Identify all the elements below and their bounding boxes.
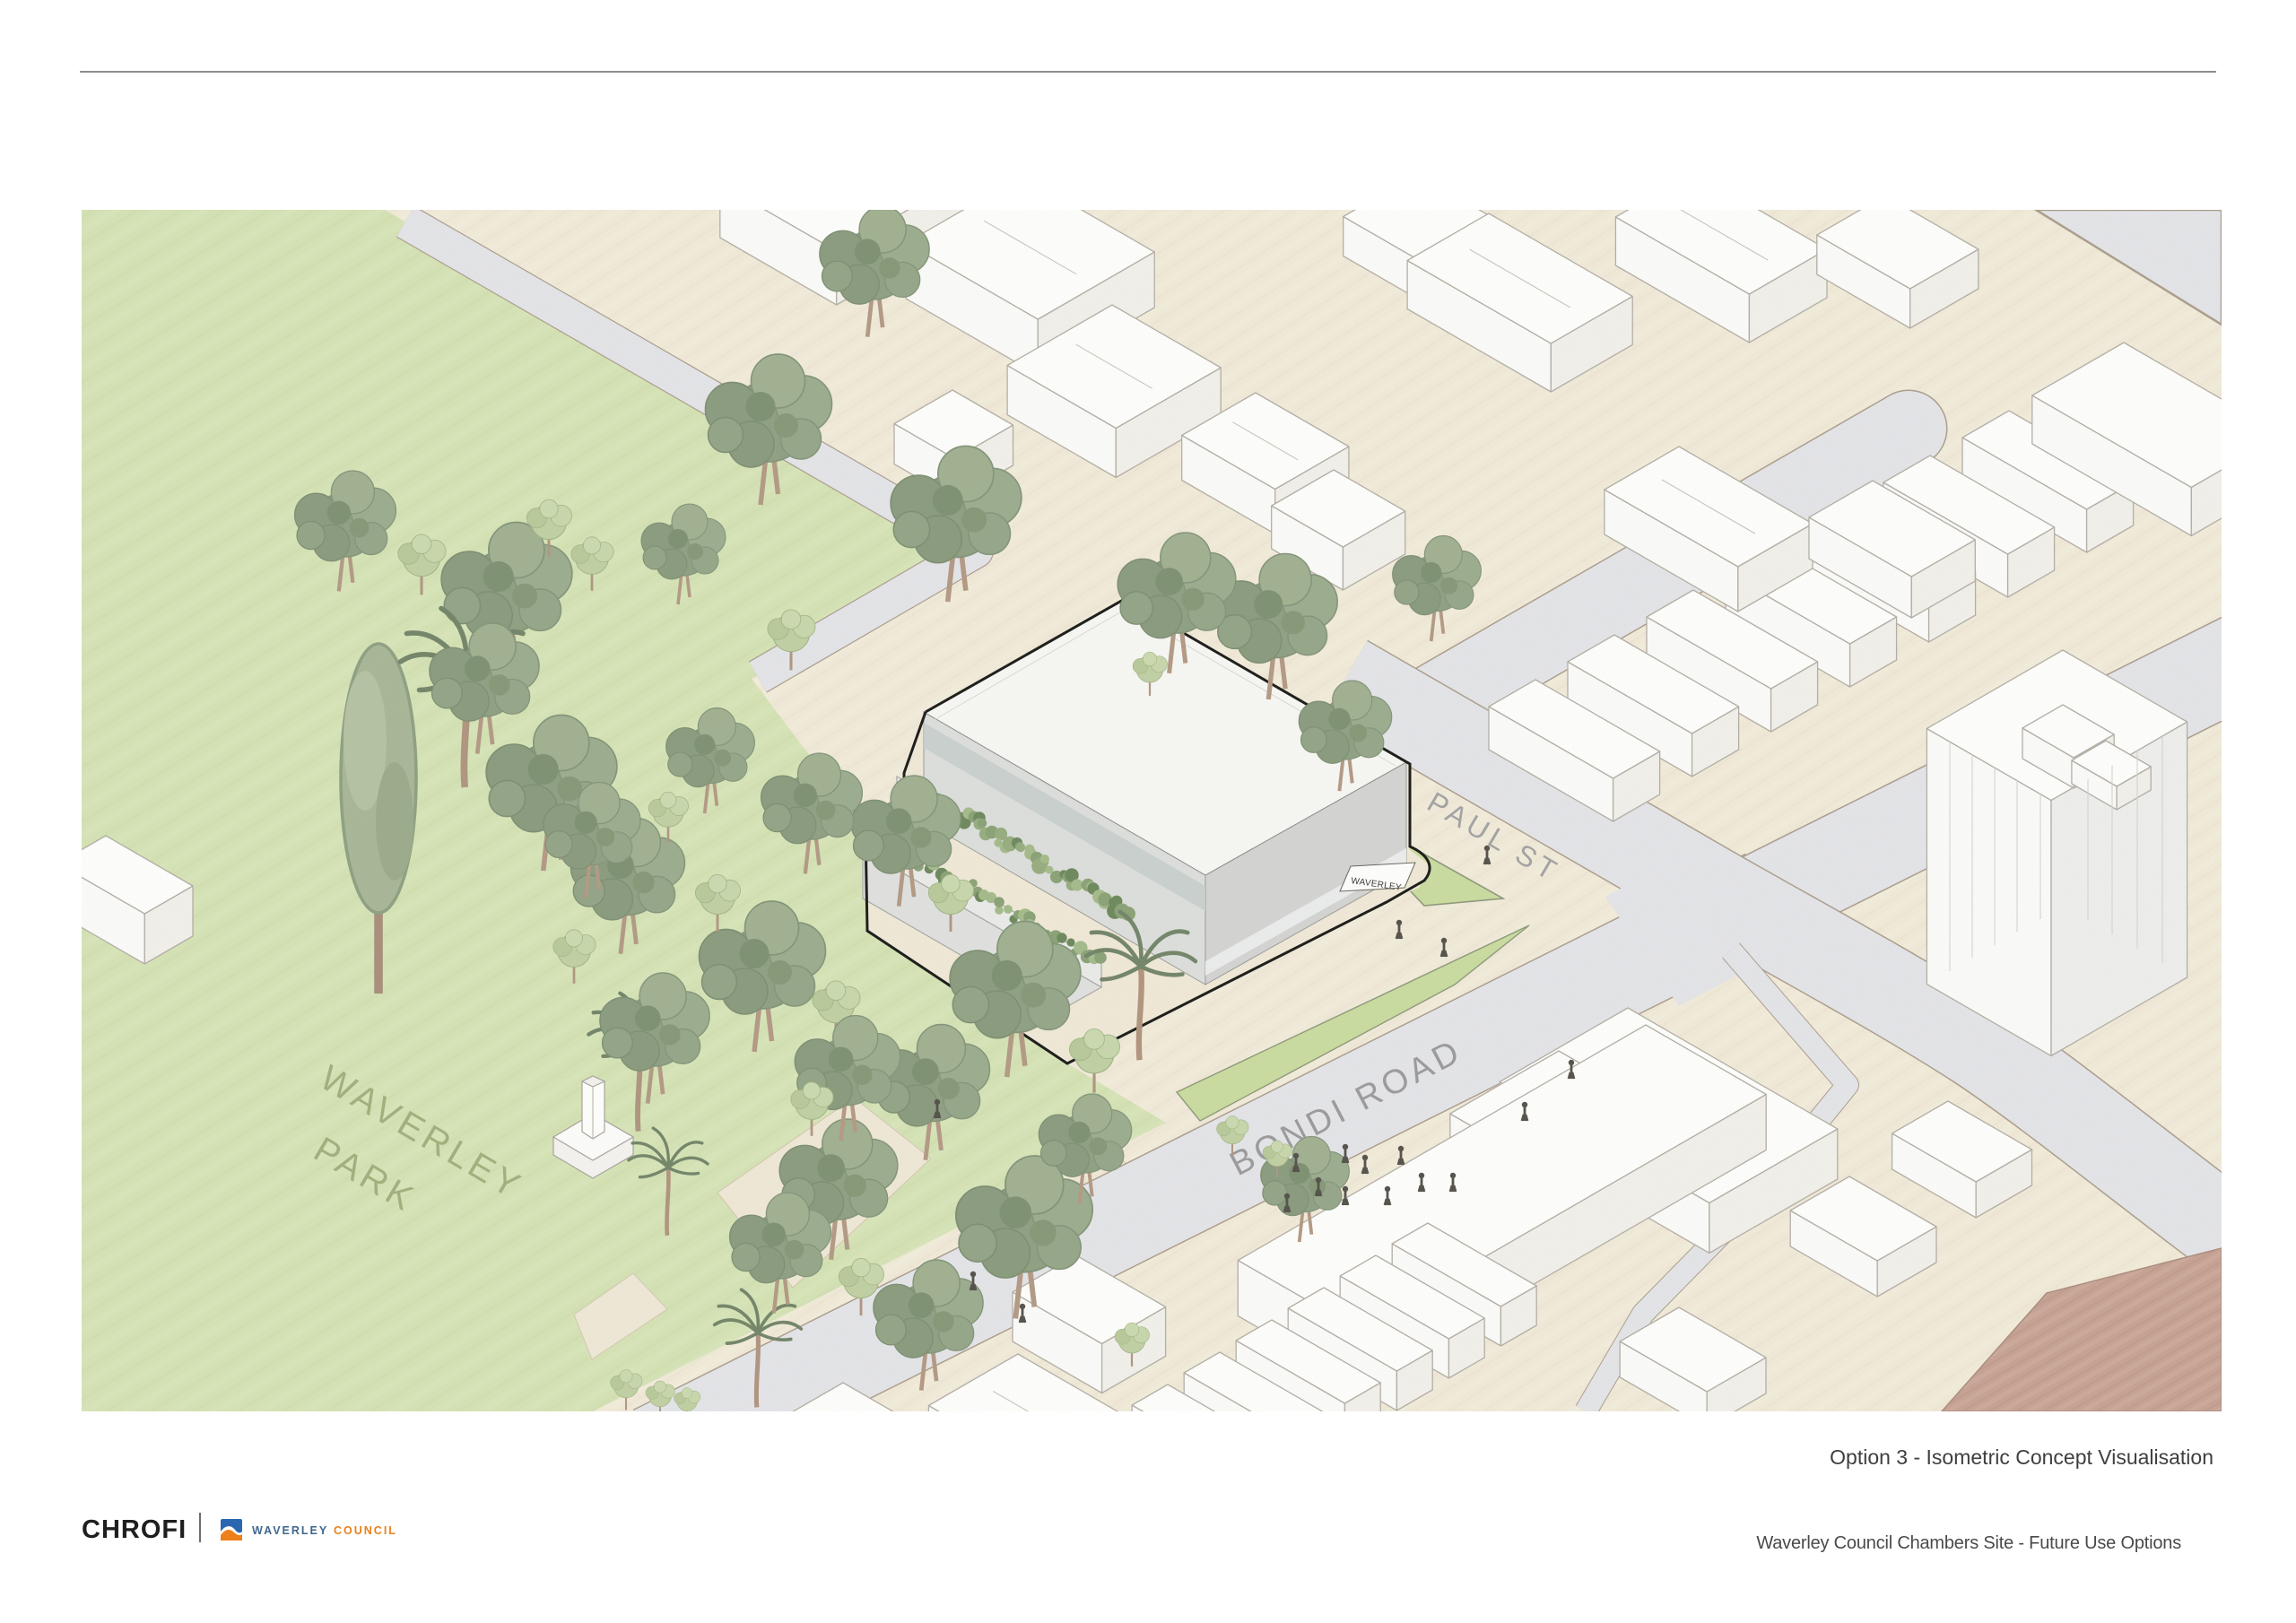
svg-text:CHROFI: CHROFI	[82, 1515, 187, 1544]
svg-text:Waverley Council Chambers Site: Waverley Council Chambers Site - Future …	[1756, 1533, 2181, 1553]
svg-text:WAVERLEY: WAVERLEY	[252, 1524, 328, 1537]
svg-text:COUNCIL: COUNCIL	[334, 1524, 397, 1537]
svg-text:Option 3 - Isometric Concept V: Option 3 - Isometric Concept Visualisati…	[1830, 1445, 2213, 1469]
